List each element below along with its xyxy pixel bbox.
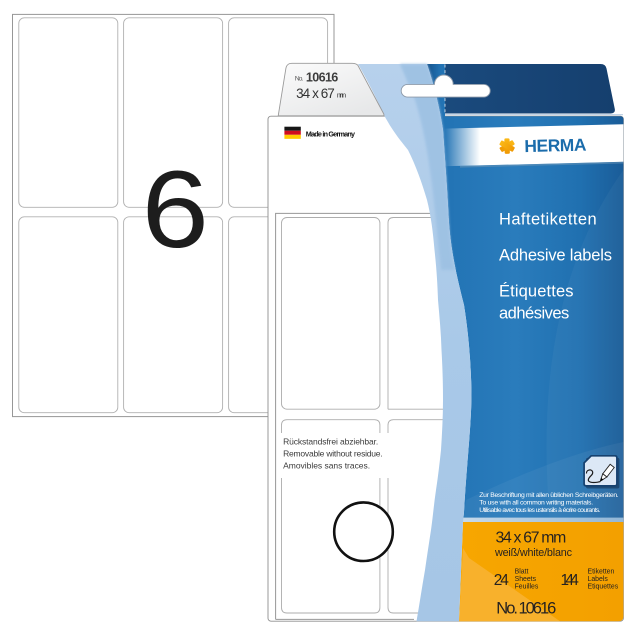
svg-text:Feuilles: Feuilles — [515, 584, 539, 591]
svg-text:34 x 67: 34 x 67 — [296, 86, 335, 101]
svg-text:No.: No. — [295, 75, 304, 82]
svg-text:weiß/white/blanc: weiß/white/blanc — [494, 547, 573, 559]
svg-text:Zur Beschriftung mit allen übl: Zur Beschriftung mit allen üblichen Schr… — [479, 492, 619, 499]
svg-text:Labels: Labels — [588, 576, 609, 583]
svg-text:24: 24 — [494, 572, 509, 589]
svg-text:Blatt: Blatt — [515, 569, 529, 576]
svg-text:adhésives: adhésives — [499, 304, 569, 322]
svg-text:34 x 67 mm: 34 x 67 mm — [496, 530, 567, 547]
svg-text:No. 10616: No. 10616 — [496, 600, 556, 618]
svg-text:mm: mm — [337, 91, 346, 100]
svg-text:Haftetiketten: Haftetiketten — [499, 211, 597, 229]
svg-text:144: 144 — [561, 572, 580, 589]
svg-text:Rückstandsfrei abziehbar.: Rückstandsfrei abziehbar. — [283, 436, 378, 446]
svg-text:Etiquettes: Etiquettes — [588, 584, 619, 591]
svg-text:Removable without residue.: Removable without residue. — [283, 449, 383, 459]
svg-text:Etiketten: Etiketten — [588, 569, 615, 576]
svg-text:To use with all common writing: To use with all common writing materials… — [479, 499, 593, 506]
svg-text:Made in Germany: Made in Germany — [306, 129, 355, 138]
svg-text:Étiquettes: Étiquettes — [499, 282, 574, 301]
svg-text:HERMA: HERMA — [524, 135, 587, 156]
svg-text:Utilisable avec tous les usten: Utilisable avec tous les ustensils à écr… — [479, 507, 600, 514]
svg-text:Sheets: Sheets — [515, 576, 537, 583]
svg-text:Adhesive labels: Adhesive labels — [499, 247, 612, 265]
svg-text:6: 6 — [142, 147, 209, 271]
svg-text:Amovibles sans traces.: Amovibles sans traces. — [283, 461, 370, 471]
svg-text:10616: 10616 — [306, 70, 338, 84]
